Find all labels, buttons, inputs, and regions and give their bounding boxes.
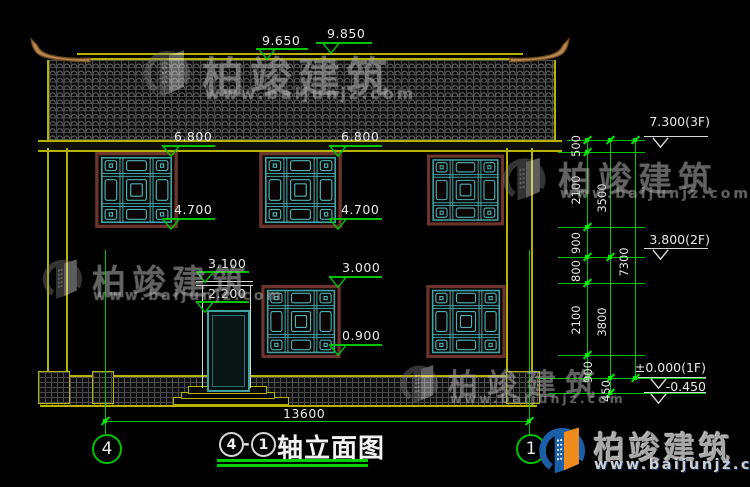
floor-marker-2f-label: 3.800(2F) [640,232,710,247]
plinth-block-axis4 [92,371,114,404]
axis-line-1 [529,250,530,434]
watermark-top-site: www.baijunjz.com [205,84,416,103]
watermark-right-site: www.baijunjz.com [560,186,750,202]
title-underline-bottom [217,464,368,467]
marker-3000-label: 3.000 [342,260,380,275]
title-axis-start: 4 [219,432,244,457]
marker-6800-left-label: 6.800 [174,129,212,144]
overall-dim-label: 13600 [283,406,325,421]
floor-marker-1f-label: ±0.000(1F) [634,360,706,375]
door-inner-panel [212,315,245,387]
title-axis-end: 1 [251,432,276,457]
marker-6800-left-triangle-icon [162,146,180,157]
marker-4700-mid-triangle-icon [329,219,347,230]
ext-line-0900 [558,355,645,356]
marker-0900-triangle-icon [329,345,347,356]
floor-marker-ground-triangle-icon [650,393,667,404]
floor-marker-3f-label: 7.300(3F) [640,114,710,129]
eave-corner-left-icon [29,37,91,63]
watermark-logo-left-icon [40,252,88,302]
floor-marker-1f-bar [638,377,706,378]
window-1f-right [424,285,508,358]
marker-4700-left-triangle-icon [162,219,180,230]
marker-9850-label: 9.850 [327,26,365,41]
watermark-logo-bottom-icon [398,357,444,407]
overall-dim-line [105,421,529,422]
plinth-block-left [38,371,70,404]
floor-marker-2f-triangle-icon [652,249,669,260]
eave-corner-right-icon [509,37,571,63]
marker-6800-mid-triangle-icon [329,146,347,157]
marker-4700-left-label: 4.700 [174,202,212,217]
window-2f-middle [259,152,342,228]
watermark-logo-top-icon [140,42,198,100]
axis-bubble-4: 4 [92,434,122,464]
marker-6800-mid-label: 6.800 [341,129,379,144]
dim-3800: 3800 [595,299,609,345]
floor-marker-3f-triangle-icon [652,137,669,148]
title-underline-top [217,459,368,462]
watermark-bottom-site: www.baijunjz.com [450,391,626,406]
brand-site: www.baijunjz.com [594,457,750,473]
watermark-logo-right-icon [500,148,552,206]
dim-800: 800 [569,248,583,294]
marker-3000-triangle-icon [329,277,347,288]
watermark-left-site: www.baijunjz.com [93,288,284,304]
marker-4700-mid-label: 4.700 [341,202,379,217]
title-dash: - [243,434,250,453]
marker-0900-label: 0.900 [342,328,380,343]
brand-logo-icon [536,419,592,477]
window-2f-left [95,152,178,228]
dim-2100-lower: 2100 [569,297,583,343]
elevation-drawing-canvas: 9.650 9.850 6.800 6.800 4.700 4.700 3.10… [0,0,750,487]
window-2f-right [427,152,504,228]
dim-7300: 7300 [617,239,631,285]
roof-eave-fascia [38,140,562,152]
entry-door [207,310,250,392]
